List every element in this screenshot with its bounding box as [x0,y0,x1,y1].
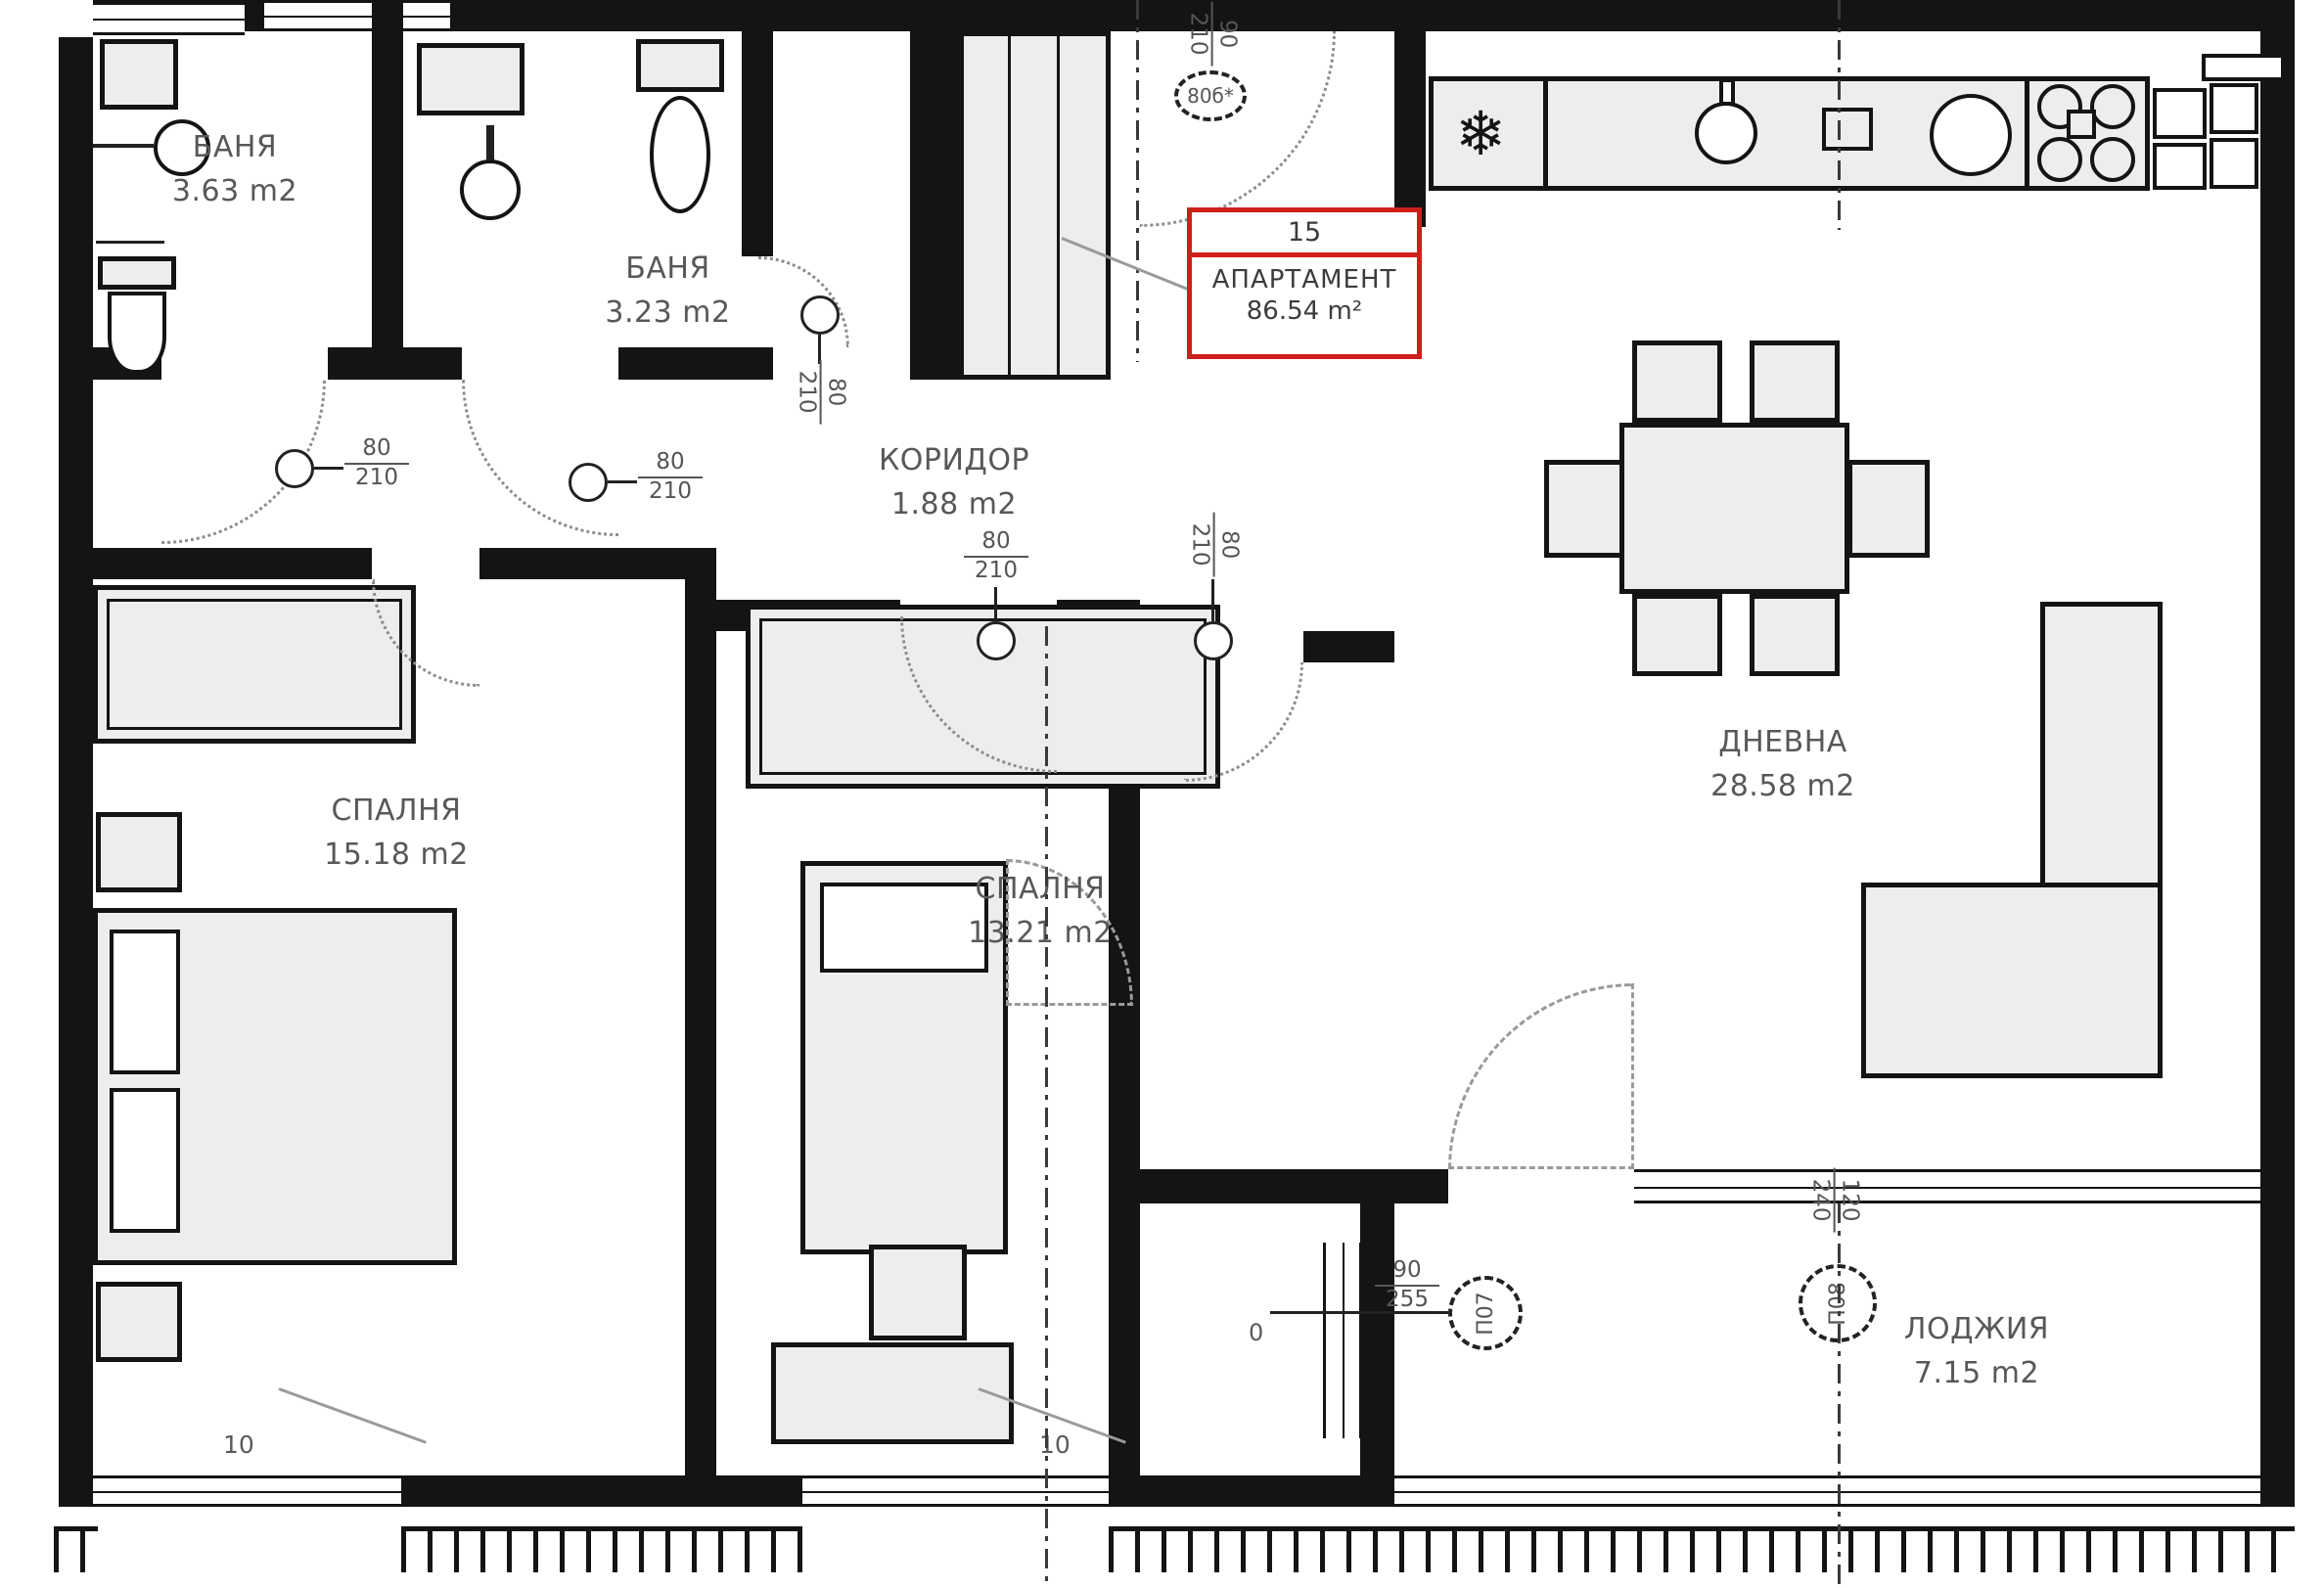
window-glass-line [264,16,450,18]
axis-line-entry [1136,0,1139,362]
room-label-bath2: БАНЯ 3.23 m2 [577,247,758,335]
window-glass-line [93,1491,401,1493]
dining-chair [1544,460,1626,558]
bath2-faucet [486,125,494,160]
wall-bedroom1-top-a [59,548,372,579]
stove-center [2067,110,2096,139]
balcony-door-arc [1448,983,1634,1169]
axis-line-kitchen [1838,0,1841,230]
wall-bottom-2 [1109,1475,1394,1507]
wall-bath2-right [742,0,773,256]
wall-loggia-top [1140,1169,1448,1203]
door-width: 90 [1211,2,1241,67]
entrance-door-tag: 80б* [1174,70,1247,121]
window-glass-line [1634,1187,2260,1189]
wall-living-entry-b [1303,631,1394,662]
door-marker-stem [608,480,637,483]
bedroom1-pillow [110,1088,180,1233]
bedroom1-nightstand [96,1282,182,1362]
window-glass-line [93,19,245,21]
door-marker-circle [275,449,314,488]
door-marker-stem [314,467,343,470]
bath1-sink [100,39,178,110]
closet-divider-line [1008,36,1011,375]
window-top-corner [93,2,245,35]
window-living-loggia [1634,1169,2260,1203]
bedroom2-desk [771,1342,1014,1444]
bath2-toilet-tank [636,39,724,92]
door-marker-circle [800,295,840,335]
dining-table [1619,423,1849,594]
floor-plan: ❄ 80 210 [0,0,2324,1588]
room-name: ЛОДЖИЯ [1869,1307,2084,1351]
dining-chair [1847,460,1930,558]
room-area: 7.15 m2 [1869,1351,2084,1395]
window-glass-line [802,1491,1109,1493]
door-height: 210 [793,360,820,425]
room-name: БАНЯ [577,247,758,291]
bedroom1-pillow [110,930,180,1074]
portal-p08-size: 120 240 [1806,1168,1862,1233]
room-area: 28.58 m2 [1675,764,1891,808]
door-width: 80 [1213,513,1243,577]
door-marker-circle [1194,621,1233,660]
room-name: БАНЯ [147,125,323,169]
room-area: 3.63 m2 [147,169,323,213]
window-glass-line [1394,1491,2260,1493]
dining-chair [1632,594,1722,676]
door-marker-circle [569,463,608,502]
door-size-vestibule: 80 210 [793,360,848,425]
kitchen-cabinet [2153,143,2207,190]
sofa-seat [1861,883,2163,1078]
window-recess [1323,1243,1362,1438]
wall-bath-divider [372,0,403,380]
door-size-living: 80 210 [1186,513,1242,577]
portal-height: 255 [1375,1287,1439,1314]
axis-line-loggia [1838,1203,1841,1588]
bedroom1-wardrobe [93,585,416,744]
door-height: 210 [638,478,703,506]
kitchen-shelf [2202,54,2285,81]
dining-chair [1632,340,1722,423]
unit-number: 15 [1192,212,1417,257]
kitchen-bowl [1930,94,2012,176]
portal-p07-label: П07 [1473,1292,1497,1336]
room-label-living: ДНЕВНА 28.58 m2 [1675,720,1891,808]
room-name: СПАЛНЯ [289,789,504,833]
door-height: 210 [1184,2,1211,67]
portal-p07-circle: П07 [1448,1276,1523,1350]
door-width: 80 [820,360,849,425]
kitchen-faucet-icon [1719,78,1735,106]
room-label-bedroom1: СПАЛНЯ 15.18 m2 [289,789,504,877]
room-label-bath1: БАНЯ 3.63 m2 [147,125,323,213]
door-height: 210 [1186,513,1213,577]
sofa-chaise [2040,602,2163,887]
unit-area: 86.54 m² [1192,295,1417,326]
wall-bath-bottom-b [328,347,462,380]
window-bedroom1 [93,1475,401,1507]
door-width: 80 [344,435,409,465]
bedroom2-stool [869,1245,967,1340]
room-label-bedroom2: СПАЛНЯ 13.21 m2 [933,867,1148,955]
door-marker-stem [1211,579,1214,621]
entrance-tag-text: 80б* [1187,84,1234,108]
room-area: 15.18 m2 [289,833,504,877]
bath1-shower-arm [93,144,154,148]
sill-mark-bedroom1: 10 [223,1430,254,1459]
entry-closet [959,31,1111,380]
kitchen-cabinet [2210,83,2258,134]
wall-right [2260,0,2295,1507]
wall-closet-left [910,31,959,380]
living-door-arc [1184,662,1303,782]
window-loggia [1394,1475,2260,1507]
portal-width: 90 [1375,1257,1439,1287]
room-name: КОРИДОР [846,438,1062,482]
room-label-corridor: КОРИДОР 1.88 m2 [846,438,1062,526]
kitchen-cabinet [2153,88,2207,139]
bath2-toilet-bowl [650,96,710,213]
room-label-loggia: ЛОДЖИЯ 7.15 m2 [1869,1307,2084,1395]
unit-type-label: АПАРТАМЕНТ [1192,257,1417,295]
bath2-door-arc [462,380,618,536]
entrance-door-size: 90 210 [1184,2,1240,67]
bath1-toilet-bowl [108,292,166,374]
railing-comb-right [1109,1526,2295,1572]
kitchen-divider-2 [2025,76,2029,191]
door-marker-circle [977,621,1016,660]
window-bedroom2 [802,1475,1109,1507]
zero-level-mark: 0 [1249,1319,1263,1346]
window-glass-line [1343,1243,1344,1438]
dining-chair [1750,594,1840,676]
portal-p07-size: 90 255 [1375,1257,1439,1313]
door-height: 210 [344,465,409,492]
wall-left [59,37,93,1507]
portal-height: 240 [1806,1168,1834,1233]
bath1-label-leader [96,241,164,244]
wall-bedroom1-top-b [479,548,716,579]
sill-mark-bedroom2: 10 [1039,1430,1071,1459]
dining-chair [1750,340,1840,423]
door-size-bedroom2: 80 210 [964,528,1028,584]
kitchen-cabinet [2210,138,2258,189]
axis-line-bedroom2 [1045,626,1048,1588]
room-area: 1.88 m2 [846,482,1062,526]
door-marker-stem [994,587,997,621]
wall-kitchen-stub [1394,31,1426,227]
door-height: 210 [964,558,1028,585]
stove-burner-icon [2090,84,2135,129]
bedroom1-nightstand [96,812,182,892]
kitchen-divider-1 [1543,76,1548,191]
kitchen-sink-icon [1695,102,1757,164]
door-width: 80 [964,528,1028,558]
room-name: СПАЛНЯ [933,867,1148,911]
bath2-sink [460,159,521,220]
wall-bottom-1 [401,1475,802,1507]
door-width: 80 [638,449,703,478]
room-area: 3.23 m2 [577,291,758,335]
room-area: 13.21 m2 [933,911,1148,955]
closet-divider-line [1057,36,1060,375]
wardrobe-inner-line [107,599,402,730]
stove-burner-icon [2090,137,2135,182]
unit-info-box: 15 АПАРТАМЕНТ 86.54 m² [1187,207,1422,359]
door-size-bath2: 80 210 [638,449,703,505]
room-name: ДНЕВНА [1675,720,1891,764]
kitchen-appliance [1822,108,1873,151]
window-top-bath [264,0,450,31]
wall-bath2-bottom [618,347,773,380]
window-opening-line [278,1387,426,1444]
door-size-bath1: 80 210 [344,435,409,491]
bath2-washer [417,43,524,115]
fridge-icon: ❄ [1455,98,1506,169]
wall-bedrooms-divider [685,548,716,1475]
wall-loggia-left [1360,1203,1394,1475]
stove-burner-icon [2037,137,2082,182]
bath1-toilet-tank [98,256,176,290]
railing-comb-center [401,1526,802,1572]
railing-comb-left [54,1526,98,1572]
